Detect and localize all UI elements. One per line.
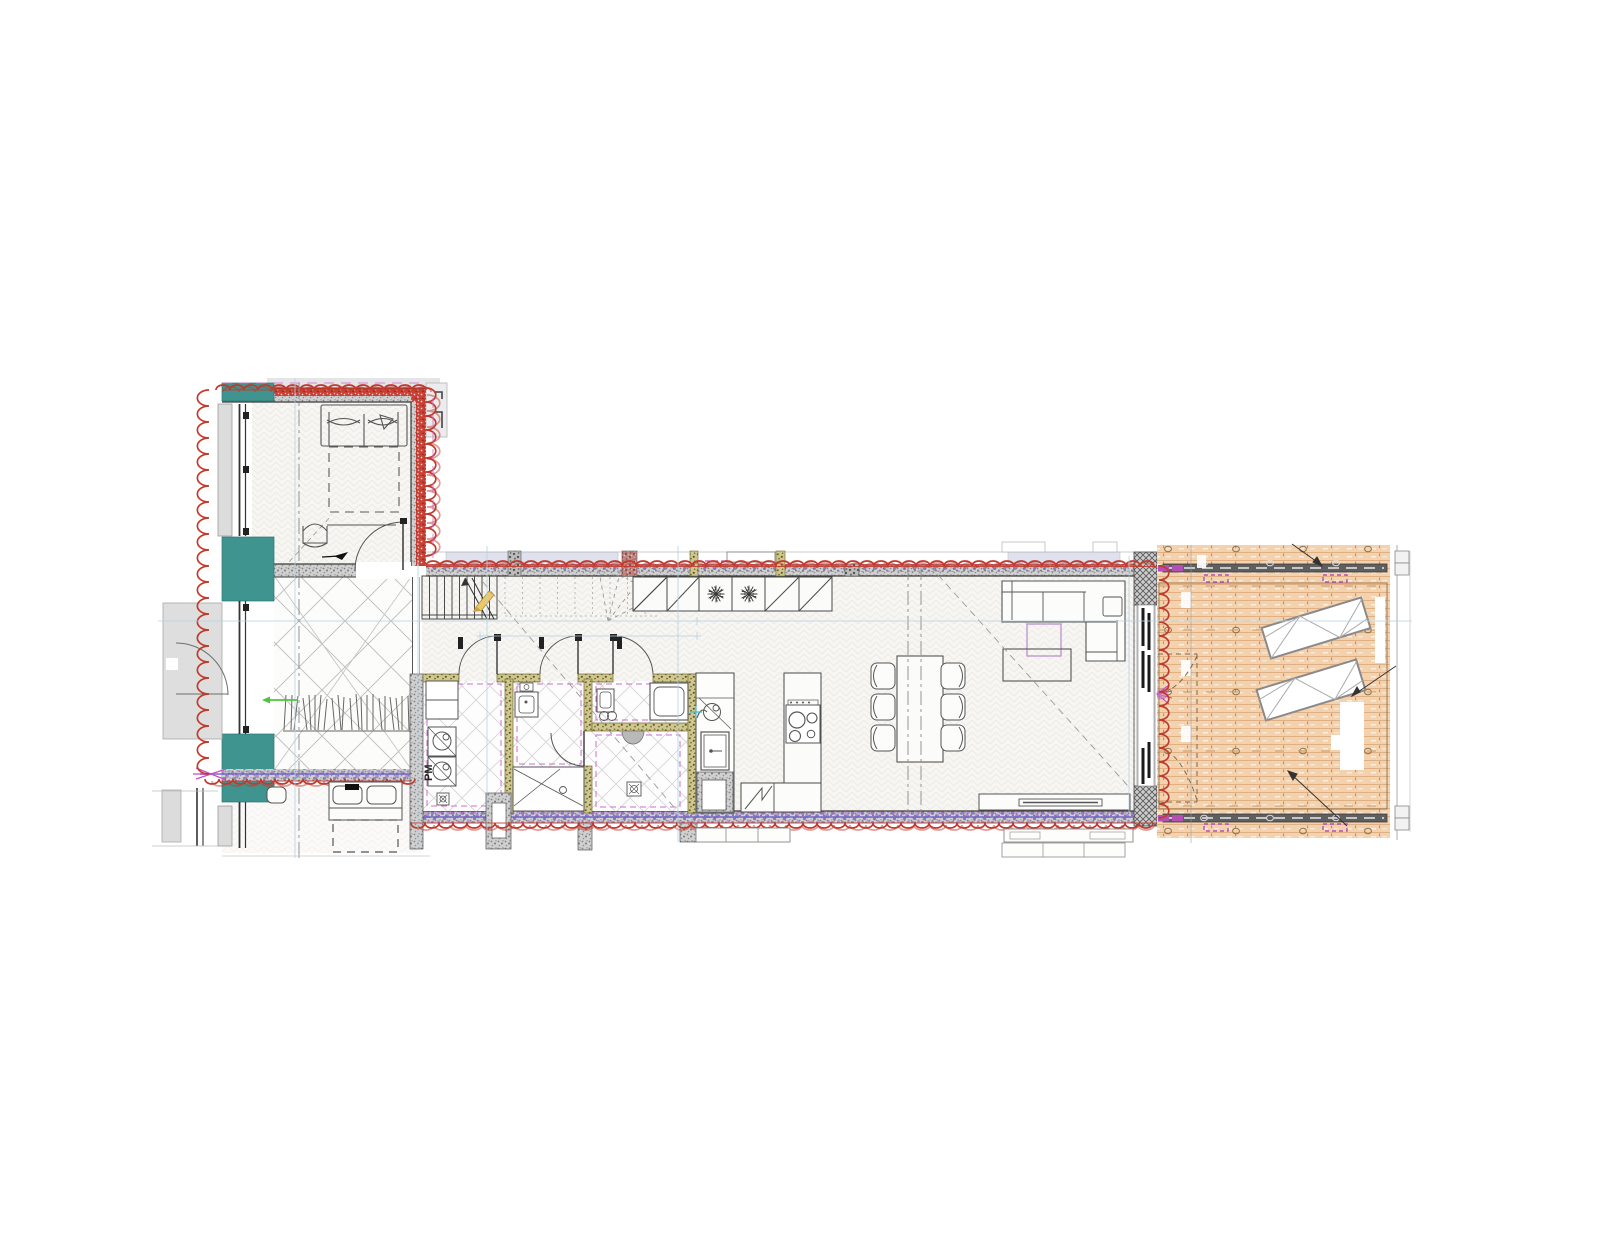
svg-text:PM: PM [423, 765, 435, 782]
